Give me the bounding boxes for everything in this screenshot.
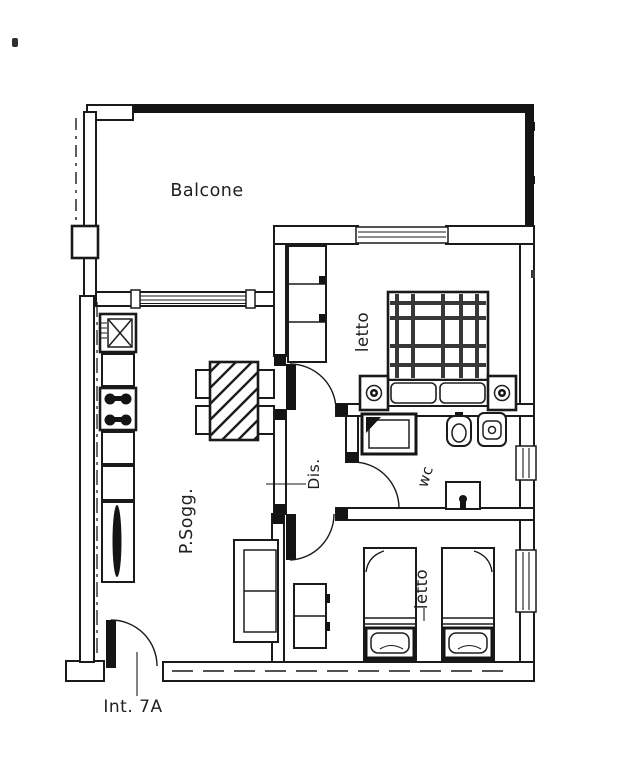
bedroom1-north-wall-right xyxy=(446,226,534,244)
label-int-7a: Int. 7A xyxy=(103,697,162,717)
door-jamb-4 xyxy=(272,514,284,524)
partition-wall-mid xyxy=(274,410,286,514)
scan-speck-3 xyxy=(531,176,535,184)
balcony-left-wall xyxy=(84,112,96,298)
balcony-left-window xyxy=(72,226,98,258)
pillow-right xyxy=(440,383,485,403)
label-wc: wc xyxy=(413,464,437,490)
bedroom2-door-arc xyxy=(290,514,334,560)
bedroom2-furniture xyxy=(294,548,494,660)
dining-set xyxy=(130,350,344,452)
wardrobe-handle-2 xyxy=(319,314,325,322)
chair-4 xyxy=(258,406,274,434)
bedroom1-door-leaf xyxy=(286,364,296,410)
partition-wall-upper xyxy=(274,244,286,356)
bedroom1-furniture xyxy=(288,246,516,410)
door-jamb-1 xyxy=(274,354,286,366)
lamp-left-center xyxy=(373,392,376,395)
kitchen-stove xyxy=(100,388,136,430)
slider-jamb-left xyxy=(131,290,140,308)
tall-unit-leaf xyxy=(113,505,122,577)
door-jamb-6 xyxy=(346,452,358,462)
wardrobe xyxy=(288,246,326,362)
toilet xyxy=(478,413,506,446)
bedroom2-north-wall xyxy=(336,508,534,520)
bedroom2-door-leaf xyxy=(286,514,296,560)
floor-plan-drawing: Balcone letto P.Sogg. Dis. wc letto Int.… xyxy=(0,0,628,768)
door-jamb-3 xyxy=(274,504,286,514)
bedroom1-door-arc xyxy=(290,364,336,410)
label-balcone: Balcone xyxy=(170,181,243,201)
label-letto-doppia: letto xyxy=(412,569,431,609)
wardrobe-handle-1 xyxy=(319,276,325,284)
kitchen-counter-1 xyxy=(102,354,134,386)
washbasin-tap-stem xyxy=(460,501,466,510)
label-p-sogg: P.Sogg. xyxy=(177,488,197,555)
bathroom-fixtures xyxy=(362,412,506,510)
kitchen-counter-3 xyxy=(102,466,134,500)
balcony-railing-top xyxy=(88,104,534,113)
cabinet-knob-2 xyxy=(325,622,330,631)
slider-jamb-right xyxy=(246,290,255,308)
bedroom1-window xyxy=(356,227,448,243)
scan-speck-4 xyxy=(531,270,535,278)
label-dis: Dis. xyxy=(305,458,323,489)
kitchen-units xyxy=(100,314,136,582)
bath-window xyxy=(516,446,536,480)
chair-3 xyxy=(258,370,274,398)
label-letto-matrimoniale: letto xyxy=(353,312,372,352)
lamp-right-center xyxy=(501,392,504,395)
scan-speck-1 xyxy=(12,38,18,47)
stove-bar-2 xyxy=(112,417,124,422)
kitchen-counter-2 xyxy=(102,432,134,464)
entrance-door-arc xyxy=(111,620,157,666)
left-outer-wall xyxy=(80,296,94,662)
sofa xyxy=(234,540,278,642)
entrance-door-leaf xyxy=(106,620,116,668)
bottom-left-step xyxy=(66,661,104,681)
bathroom-door-arc xyxy=(353,462,399,508)
scan-speck-2 xyxy=(531,122,535,131)
door-jamb-5 xyxy=(336,404,348,416)
cabinet-knob-1 xyxy=(325,594,330,603)
bedroom1-north-wall-left xyxy=(274,226,358,244)
door-jamb-7 xyxy=(336,508,348,520)
door-jamb-2 xyxy=(274,410,286,420)
stove-bar-1 xyxy=(112,396,124,401)
pillow-left xyxy=(391,383,436,403)
floor-plan-page: Balcone letto P.Sogg. Dis. wc letto Int.… xyxy=(0,0,628,768)
bedroom2-window xyxy=(516,550,536,612)
